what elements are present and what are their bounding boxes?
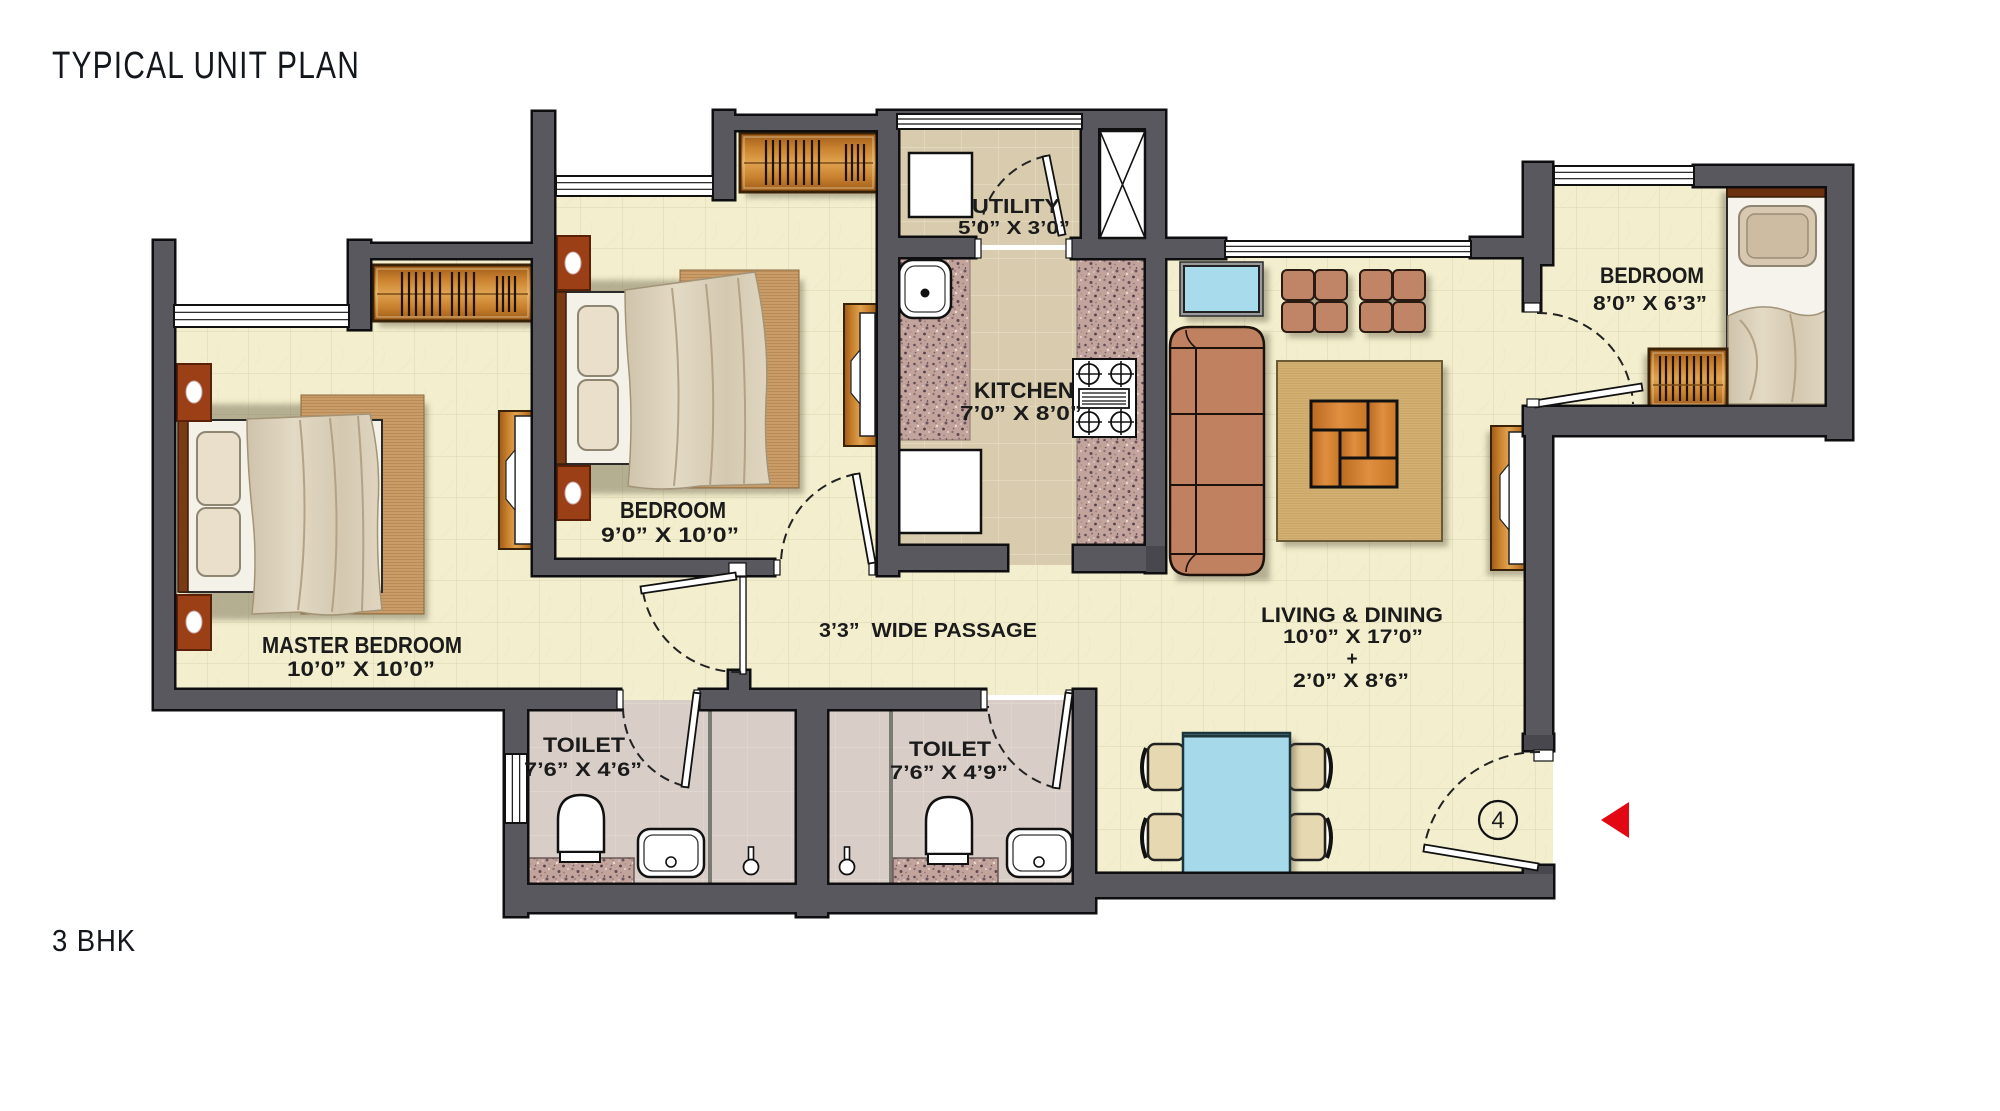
svg-text:9’0” X 10’0”: 9’0” X 10’0” bbox=[601, 524, 739, 547]
svg-text:KITCHEN: KITCHEN bbox=[974, 378, 1074, 403]
svg-text:8’0” X 6’3”: 8’0” X 6’3” bbox=[1593, 293, 1707, 315]
svg-text:7’6” X 4’9”: 7’6” X 4’9” bbox=[890, 763, 1008, 784]
svg-text:4: 4 bbox=[1491, 807, 1504, 834]
svg-text:3’3” WIDE PASSAGE: 3’3” WIDE PASSAGE bbox=[819, 620, 1037, 642]
svg-text:10’0” X 17’0”: 10’0” X 17’0” bbox=[1283, 627, 1423, 648]
svg-text:+: + bbox=[1346, 649, 1357, 670]
svg-text:7’0” X 8’0”: 7’0” X 8’0” bbox=[960, 403, 1082, 425]
svg-text:7’6” X 4’6”: 7’6” X 4’6” bbox=[524, 760, 642, 781]
svg-text:BEDROOM: BEDROOM bbox=[1600, 263, 1704, 288]
svg-text:2’0” X 8’6”: 2’0” X 8’6” bbox=[1293, 671, 1409, 692]
svg-text:BEDROOM: BEDROOM bbox=[620, 497, 726, 523]
svg-text:TOILET: TOILET bbox=[543, 734, 625, 757]
svg-text:TYPICAL UNIT PLAN: TYPICAL UNIT PLAN bbox=[52, 45, 360, 87]
svg-text:3 BHK: 3 BHK bbox=[52, 923, 136, 958]
svg-text:UTILITY: UTILITY bbox=[972, 196, 1061, 218]
svg-text:MASTER BEDROOM: MASTER BEDROOM bbox=[262, 632, 462, 658]
svg-text:5’0” X 3’0”: 5’0” X 3’0” bbox=[958, 218, 1070, 238]
svg-text:TOILET: TOILET bbox=[909, 738, 991, 761]
svg-text:LIVING & DINING: LIVING & DINING bbox=[1261, 604, 1443, 627]
svg-text:10’0” X 10’0”: 10’0” X 10’0” bbox=[287, 658, 435, 681]
